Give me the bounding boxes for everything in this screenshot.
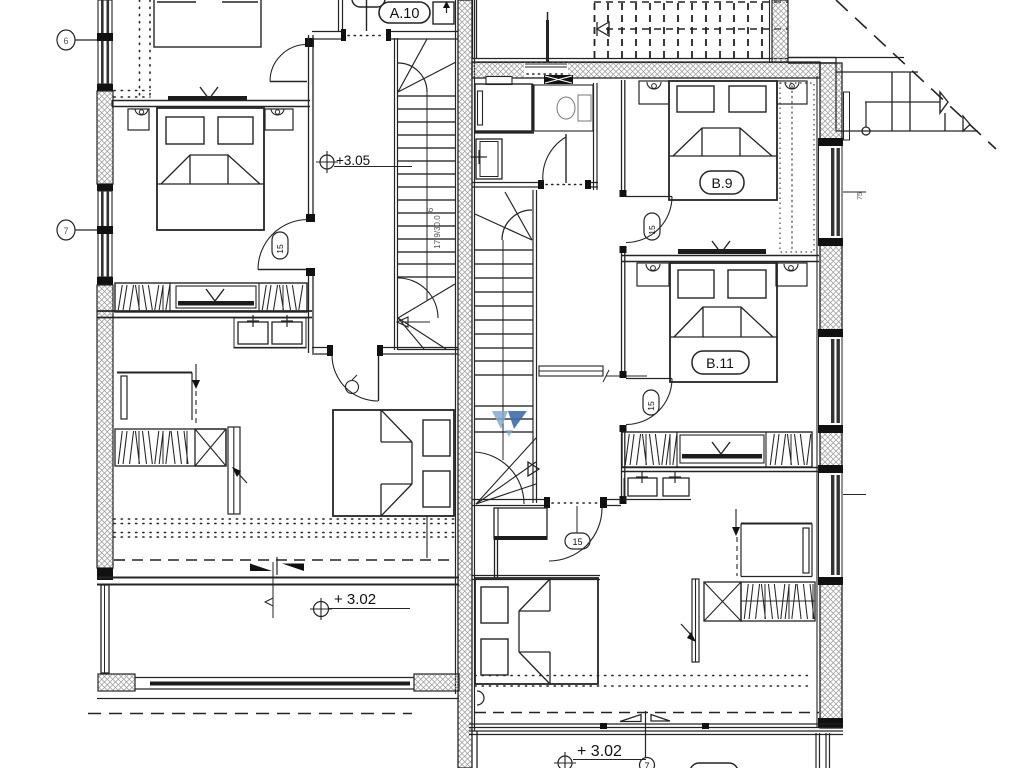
svg-text:+3.05: +3.05 xyxy=(336,153,370,168)
svg-text:B.11: B.11 xyxy=(706,355,734,371)
svg-text:75: 75 xyxy=(857,192,864,200)
svg-text:A.10: A.10 xyxy=(390,6,420,22)
svg-text:B.9: B.9 xyxy=(711,175,732,191)
svg-text:7: 7 xyxy=(63,226,68,236)
svg-text:6: 6 xyxy=(426,207,435,212)
svg-text:15: 15 xyxy=(647,225,657,235)
svg-text:15: 15 xyxy=(572,537,582,547)
svg-text:+ 3.02: + 3.02 xyxy=(577,743,622,760)
svg-text:6: 6 xyxy=(63,36,68,46)
svg-text:7: 7 xyxy=(644,761,649,768)
svg-text:15: 15 xyxy=(275,244,285,254)
svg-text:17.9/30.0: 17.9/30.0 xyxy=(433,215,442,249)
svg-text:15: 15 xyxy=(646,401,656,411)
svg-text:+ 3.02: + 3.02 xyxy=(334,591,376,608)
